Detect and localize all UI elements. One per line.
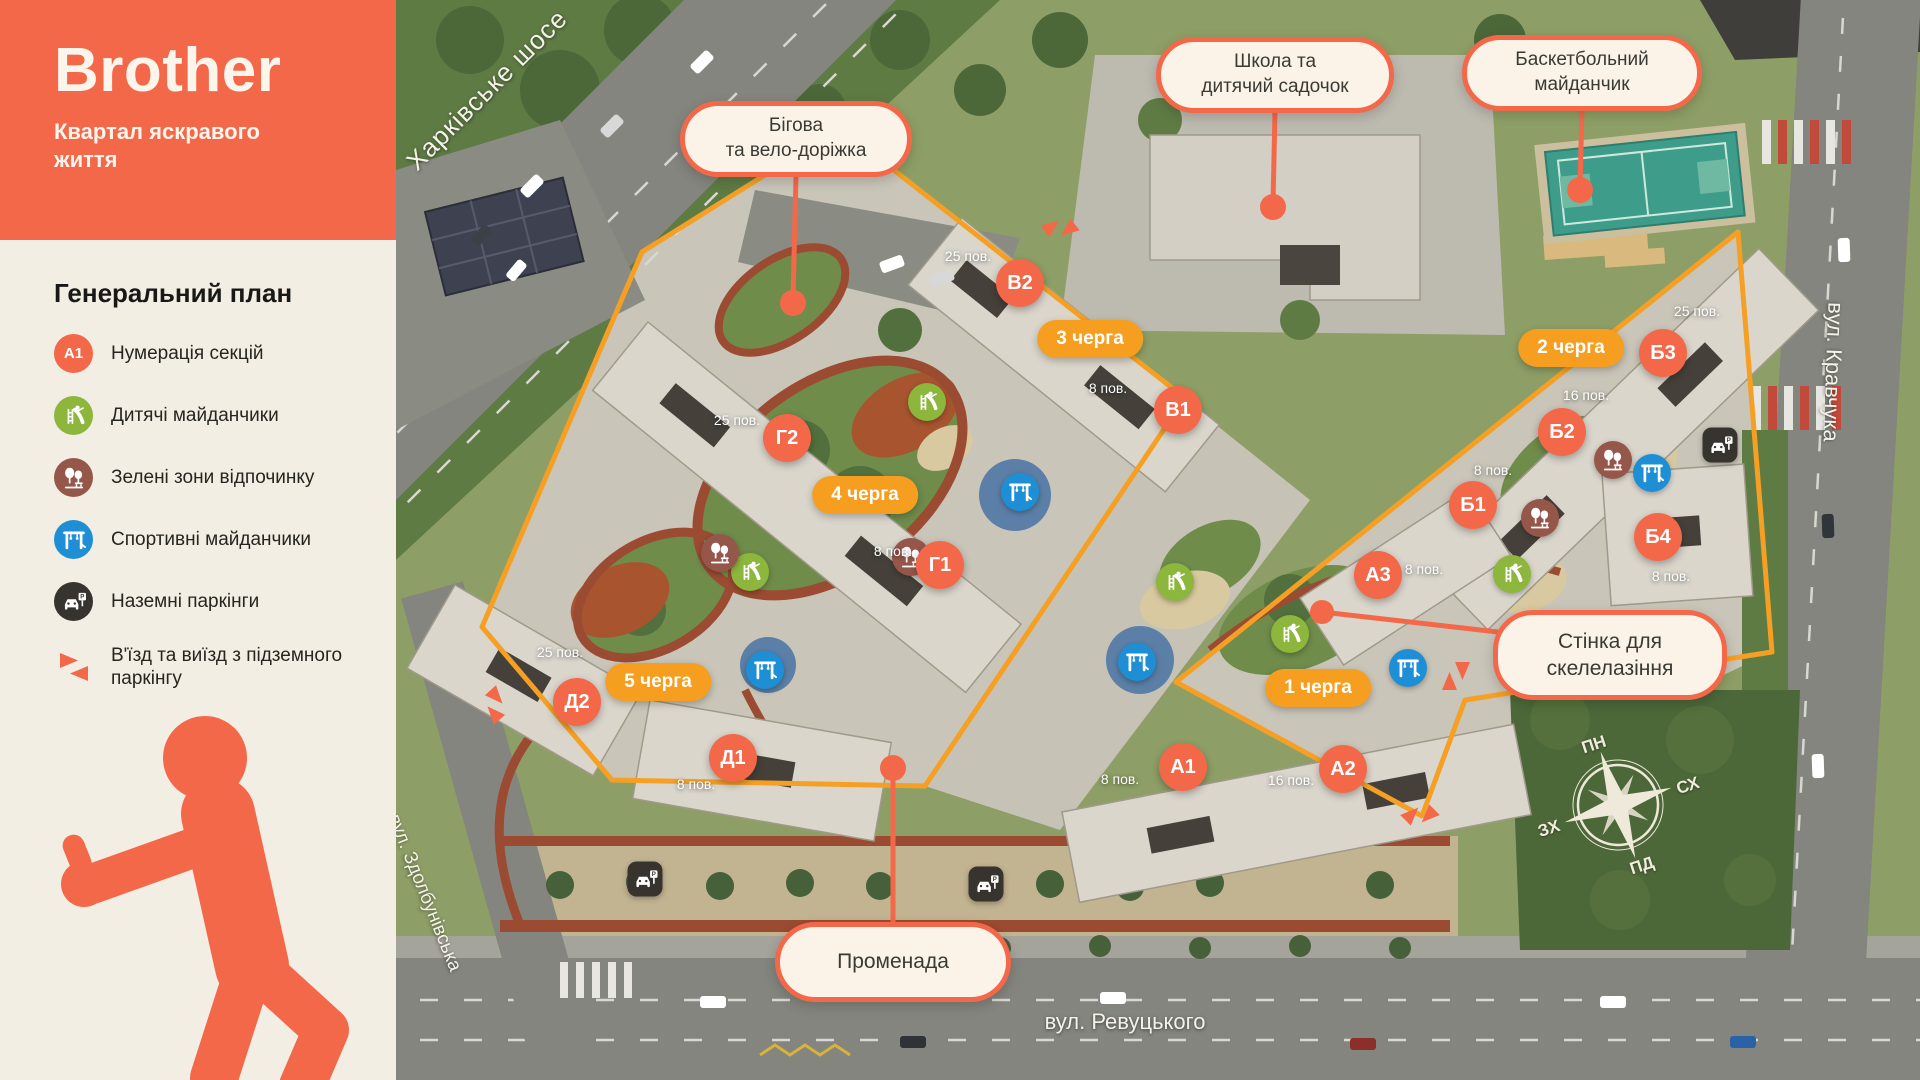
playground-icon <box>908 383 946 421</box>
phase-badge: 1 черга <box>1265 669 1371 707</box>
phase-badge: 5 черга <box>605 663 711 701</box>
legend-label: Нумерація секцій <box>111 342 264 365</box>
brand-tagline: Квартал яскравого життя <box>54 118 304 173</box>
callout-line: Школа та <box>1234 50 1316 75</box>
building-marker-В1[interactable]: В1 <box>1154 386 1202 434</box>
sports-icon <box>1001 473 1039 511</box>
page-title: Генеральний план <box>54 278 292 309</box>
floor-count-label: 16 пов. <box>1268 772 1314 788</box>
callout-school-kindergarten: Школа та дитячий садочок <box>1156 37 1394 113</box>
green-zone-icon <box>1521 499 1559 537</box>
legend-label: Зелені зони відпочинку <box>111 466 314 489</box>
playground-icon <box>1156 563 1194 601</box>
legend-item-playgrounds: Дитячі майданчики <box>54 396 374 435</box>
building-marker-А1[interactable]: А1 <box>1159 743 1207 791</box>
callout-climbing-wall: Стінка для скелелазіння <box>1493 610 1727 700</box>
genplan-poster: Харківське шосе вул. Кравчука вул. Здолб… <box>0 0 1920 1080</box>
building-marker-Г1[interactable]: Г1 <box>916 541 964 589</box>
phase-badge: 2 черга <box>1518 329 1624 367</box>
callout-running-track: Бігова та вело-доріжка <box>680 101 912 177</box>
brand-block: Brother Квартал яскравого життя <box>0 0 396 240</box>
parking-icon: P <box>54 582 93 621</box>
legend-item-parking: P Наземні паркінги <box>54 582 374 621</box>
building-marker-Б4[interactable]: Б4 <box>1634 513 1682 561</box>
floor-count-label: 8 пов. <box>677 776 715 792</box>
street-label-revutskoho: вул. Ревуцького <box>1045 1009 1206 1035</box>
sports-icon <box>1389 649 1427 687</box>
svg-text:P: P <box>992 876 996 883</box>
legend-item-sections: А1 Нумерація секцій <box>54 334 374 373</box>
green-zone-icon <box>1594 441 1632 479</box>
callout-promenade: Променада <box>775 922 1011 1002</box>
building-marker-А2[interactable]: А2 <box>1319 745 1367 793</box>
callout-line: майданчик <box>1534 73 1629 98</box>
callout-line: Променада <box>837 948 949 975</box>
callout-line: Бігова <box>769 114 823 139</box>
section-badge-icon: А1 <box>54 334 93 373</box>
svg-text:P: P <box>651 871 655 878</box>
legend-item-sports: Спортивні майданчики <box>54 520 374 559</box>
building-marker-В2[interactable]: В2 <box>996 259 1044 307</box>
sports-icon <box>54 520 93 559</box>
building-marker-Г2[interactable]: Г2 <box>763 414 811 462</box>
phase-badge: 3 черга <box>1037 320 1143 358</box>
sports-icon <box>1633 454 1671 492</box>
sports-icon <box>746 651 784 689</box>
person-silhouette <box>20 714 350 1080</box>
floor-count-label: 16 пов. <box>1563 387 1609 403</box>
legend-item-entry-exit: В'їзд та виїзд з підземного паркінгу <box>54 644 374 690</box>
playground-icon <box>1271 615 1309 653</box>
svg-text:P: P <box>1726 437 1730 444</box>
legend-label: Наземні паркінги <box>111 590 259 613</box>
callout-line: скелелазіння <box>1547 655 1674 682</box>
parking-icon: P <box>1703 428 1738 463</box>
legend-label: В'їзд та виїзд з підземного паркінгу <box>111 644 356 690</box>
building-marker-Б2[interactable]: Б2 <box>1538 408 1586 456</box>
building-marker-А3[interactable]: А3 <box>1354 551 1402 599</box>
legend-label: Дитячі майданчики <box>111 404 279 427</box>
phase-badge: 4 черга <box>812 476 918 514</box>
parking-icon: P <box>969 867 1004 902</box>
building-marker-Д2[interactable]: Д2 <box>553 678 601 726</box>
callout-line: та вело-доріжка <box>726 139 867 164</box>
legend-label: Спортивні майданчики <box>111 528 311 551</box>
legend: А1 Нумерація секцій Дитячі майданчики Зе… <box>54 334 374 713</box>
svg-text:P: P <box>80 593 84 600</box>
legend-item-green-zones: Зелені зони відпочинку <box>54 458 374 497</box>
callout-line: Баскетбольний <box>1515 48 1648 73</box>
floor-count-label: 8 пов. <box>1089 380 1127 396</box>
green-zone-icon <box>701 534 739 572</box>
floor-count-label: 8 пов. <box>874 543 912 559</box>
green-zone-icon <box>54 458 93 497</box>
playground-icon <box>1493 555 1531 593</box>
floor-count-label: 25 пов. <box>714 412 760 428</box>
section-badge-text: А1 <box>64 345 83 362</box>
sports-icon <box>1118 643 1156 681</box>
floor-count-label: 8 пов. <box>1652 568 1690 584</box>
floor-count-label: 25 пов. <box>945 248 991 264</box>
street-label-kravchuka: вул. Кравчука <box>1818 302 1849 442</box>
sidebar: Brother Квартал яскравого життя Генераль… <box>0 0 396 1080</box>
floor-count-label: 25 пов. <box>1674 303 1720 319</box>
floor-count-label: 8 пов. <box>1101 771 1139 787</box>
brand-logo: Brother <box>54 40 366 102</box>
floor-count-label: 8 пов. <box>1474 462 1512 478</box>
callout-basketball-court: Баскетбольний майданчик <box>1462 35 1702 111</box>
building-marker-Д1[interactable]: Д1 <box>709 734 757 782</box>
parking-icon: P <box>628 862 663 897</box>
callout-line: Стінка для <box>1558 628 1662 655</box>
playground-icon <box>54 396 93 435</box>
building-marker-Б3[interactable]: Б3 <box>1639 329 1687 377</box>
building-marker-Б1[interactable]: Б1 <box>1449 481 1497 529</box>
entry-exit-arrows-icon <box>54 648 93 687</box>
floor-count-label: 25 пов. <box>537 644 583 660</box>
callout-line: дитячий садочок <box>1201 75 1348 100</box>
floor-count-label: 8 пов. <box>1405 561 1443 577</box>
entry-exit-arrows-icon <box>1439 659 1473 693</box>
